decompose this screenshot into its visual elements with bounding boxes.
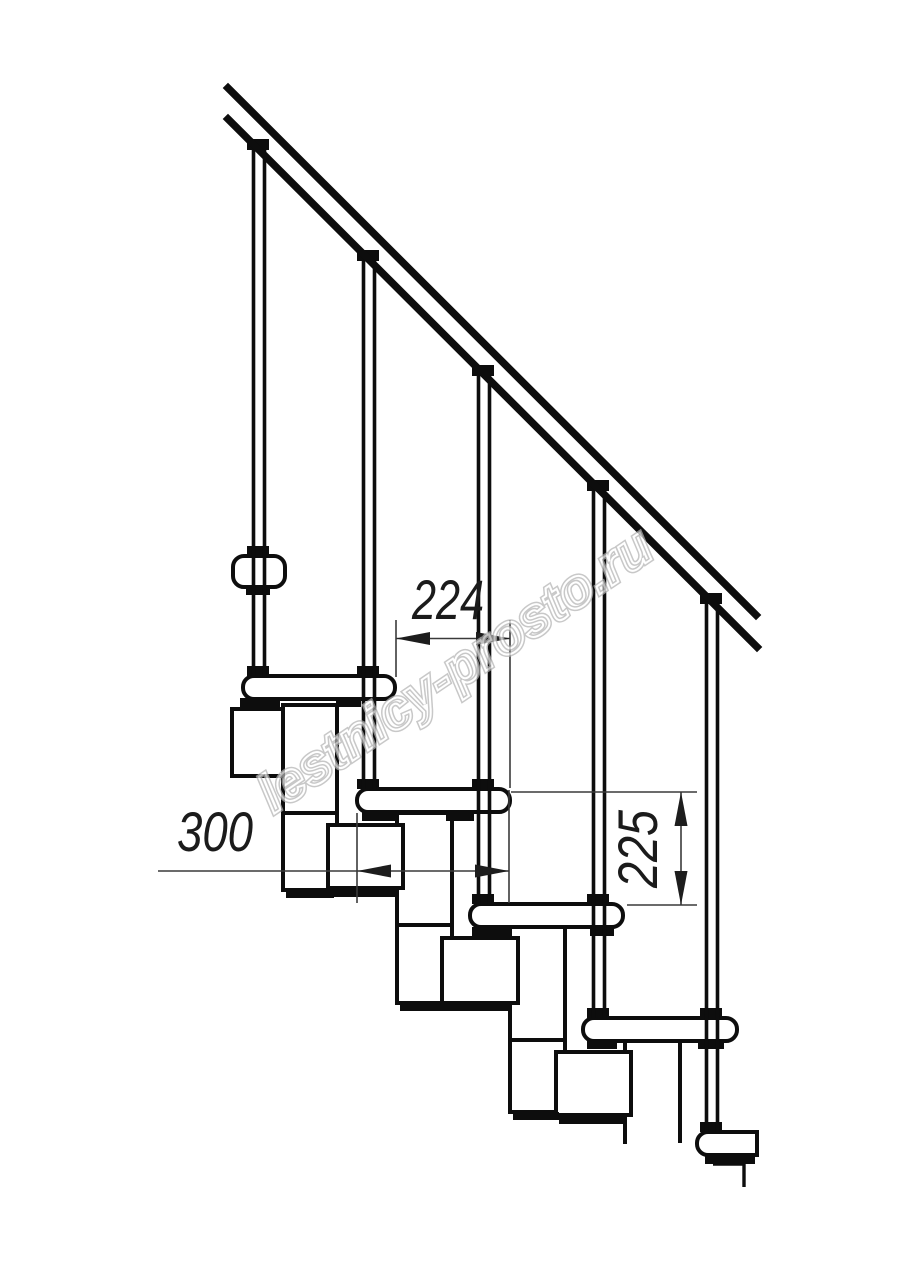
baluster-5 [707,604,718,1132]
module-foot-strip [513,1112,559,1120]
baluster-1 [254,150,265,676]
dimension-value-300: 300 [177,800,253,863]
module-foot-strip [559,1115,623,1124]
watermark-text-inner: lestnicy-prosto.ru [247,516,664,824]
module-foot-strip [331,888,395,897]
stringer-module-connector-3 [556,1052,631,1115]
under-tread-pad [472,927,510,936]
handrail-top-line [228,88,756,615]
under-tread-pad [698,1041,724,1049]
arrowhead-left [396,632,430,645]
tread-3 [470,904,623,927]
module-foot-strip [286,890,334,898]
under-tread-pad [240,698,280,707]
stringer-module-vertical-4-cut [625,1041,680,1144]
upper-landing-bracket [233,556,285,587]
tread-5-cut [697,1132,757,1155]
staircase-technical-drawing: 224 300 225 lestnicy-prosto.ru lestnicy-… [0,0,914,1280]
arrowhead-down [675,871,688,905]
arrowhead-up [675,792,688,826]
under-tread-pad [705,1155,755,1164]
tread-4 [583,1018,737,1041]
under-tread-pad [587,1041,617,1049]
stringer-module-connector-1 [328,825,403,888]
watermark: lestnicy-prosto.ru lestnicy-prosto.ru [247,516,664,824]
dimension-value-225: 225 [606,809,669,889]
handrail-bottom-line [228,119,757,647]
module-foot-strip [445,1003,512,1011]
arrowhead-right [475,865,509,878]
module-foot-strip [400,1003,450,1011]
tread-2 [357,789,510,812]
under-tread-pad [246,587,270,595]
stringer-module-connector-2 [442,938,518,1003]
drawing-break-line [713,1164,744,1187]
under-tread-pad [446,812,474,821]
under-tread-pad [362,812,398,821]
